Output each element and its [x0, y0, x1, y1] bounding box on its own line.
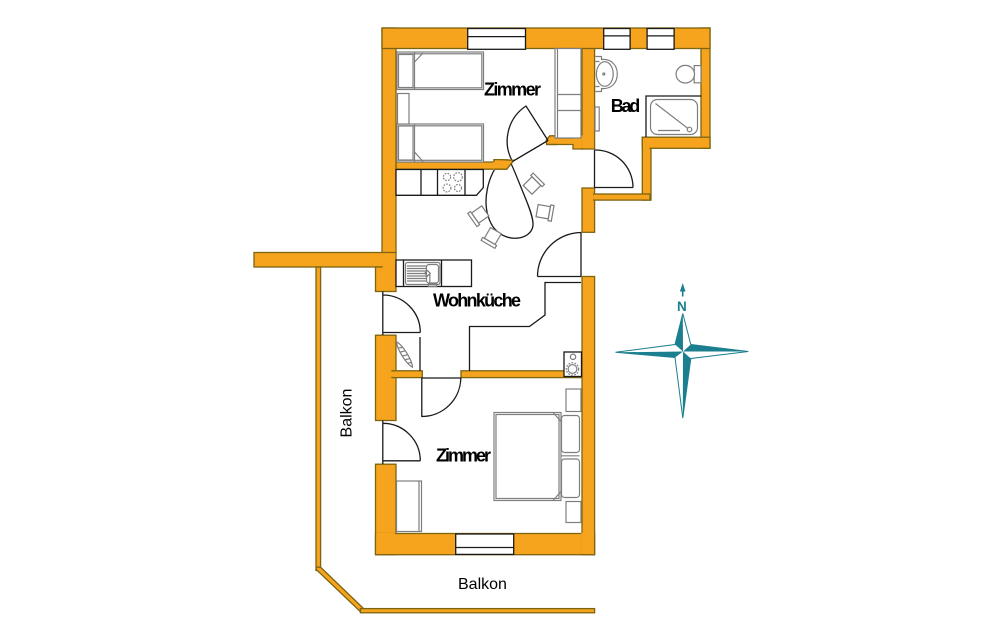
svg-text:Zimmer: Zimmer: [436, 446, 491, 466]
svg-text:Bad: Bad: [611, 96, 641, 116]
svg-text:N: N: [677, 299, 687, 314]
svg-text:Balkon: Balkon: [458, 576, 507, 593]
svg-text:Zimmer: Zimmer: [484, 80, 541, 100]
svg-text:Balkon: Balkon: [339, 389, 356, 438]
svg-text:Wohnküche: Wohnküche: [433, 291, 521, 311]
